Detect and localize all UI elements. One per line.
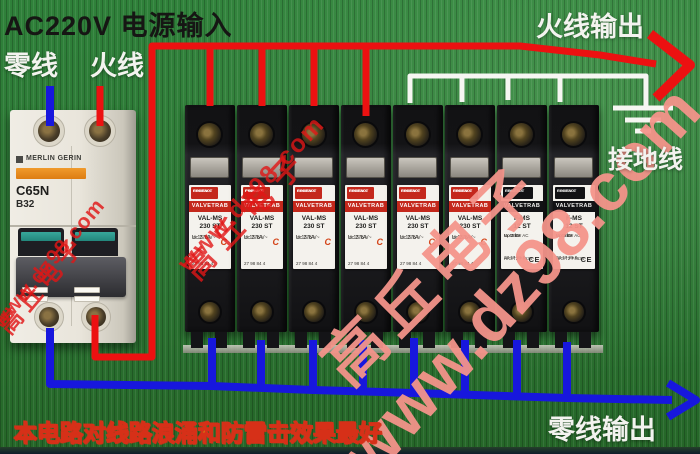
input-wire-labels: 零线火线 [4,44,144,83]
neutral-output-arrow-icon [668,383,696,417]
live-output-arrow-icon [650,34,690,98]
neutral-output-label: 零线输出 [548,408,656,447]
live-output-label: 火线输出 [536,5,644,44]
title-power-input: AC220V 电源输入 [4,4,233,43]
neutral-input-label: 零线 [4,51,58,81]
photo-surge-protection-wiring: MERLIN GERIN C65N B32 ▴▾▴▾ PHOENIXCONTAC… [0,0,700,454]
ground-bus [410,76,646,106]
live-wire-drops [210,46,366,116]
ground-wire [410,76,673,131]
earth-symbol-icon [613,108,673,131]
live-wire-bus [95,46,656,357]
ground-wire-drops [462,76,560,102]
bottom-caption: 本电路对线路浪涌和防雷击效果最好 [14,414,382,448]
live-wire [95,34,690,357]
live-input-label: 火线 [90,51,144,81]
ground-wire-label: 接地线 [608,140,683,176]
neutral-wire [50,86,696,417]
